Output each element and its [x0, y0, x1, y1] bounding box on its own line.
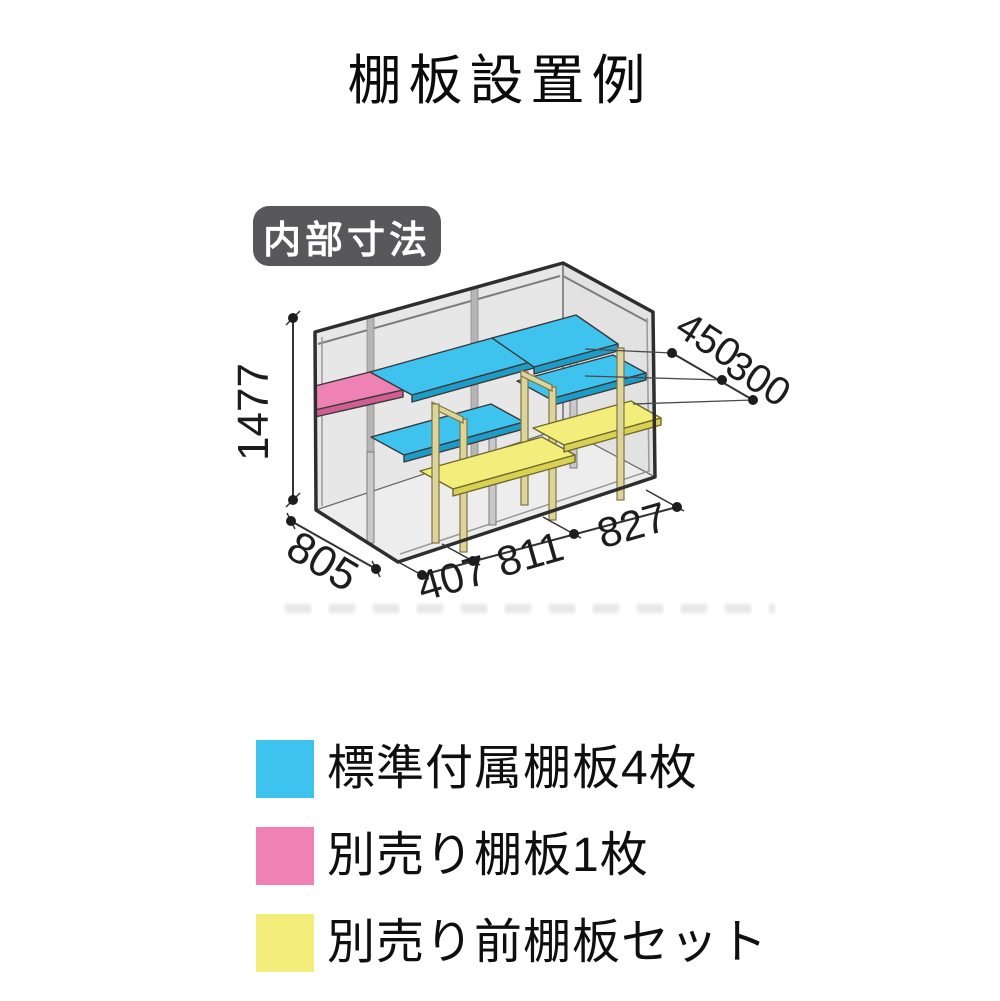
legend-label: 別売り前棚板セット [327, 914, 768, 972]
pink-swatch-icon [256, 827, 314, 885]
legend-label: 別売り棚板1枚 [327, 827, 649, 885]
blue-swatch-icon [256, 740, 314, 798]
legend-item-optional-front-shelf-set: 別売り前棚板セット [256, 914, 768, 972]
legend: 標準付属棚板4枚 別売り棚板1枚 別売り前棚板セット [256, 740, 768, 1001]
dim-width-2: 811 [491, 522, 568, 586]
yellow-swatch-icon [256, 914, 314, 972]
dim-width-1: 407 [412, 546, 492, 610]
legend-label: 標準付属棚板4枚 [327, 740, 698, 798]
dim-height: 1477 [229, 363, 278, 461]
legend-item-standard-shelf: 標準付属棚板4枚 [256, 740, 768, 798]
watermark-artifact [285, 604, 775, 613]
dim-width-3: 827 [592, 493, 672, 557]
legend-item-optional-shelf: 別売り棚板1枚 [256, 827, 768, 885]
